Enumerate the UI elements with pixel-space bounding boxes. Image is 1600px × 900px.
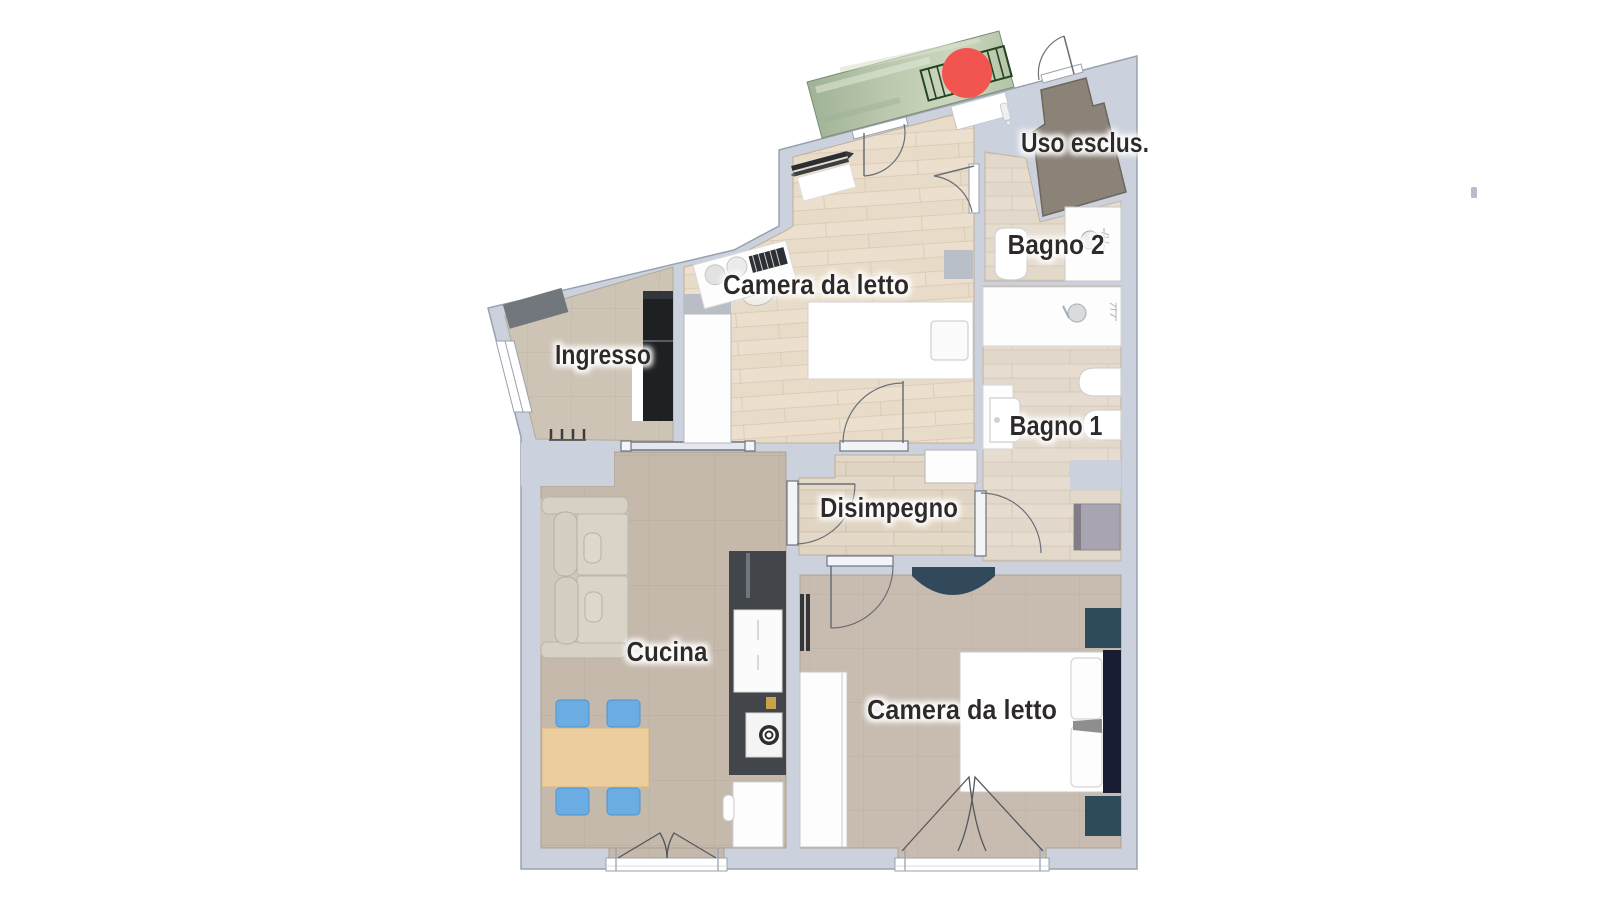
svg-text:Disimpegno: Disimpegno [820, 492, 958, 523]
svg-text:Ingresso: Ingresso [555, 339, 651, 370]
svg-text:Camera da letto: Camera da letto [723, 269, 909, 300]
svg-text:Uso esclus.: Uso esclus. [1021, 127, 1149, 158]
svg-text:Camera da letto: Camera da letto [867, 694, 1057, 725]
svg-text:Cucina: Cucina [627, 636, 708, 667]
svg-text:Bagno 2: Bagno 2 [1008, 229, 1105, 260]
svg-text:Bagno 1: Bagno 1 [1010, 410, 1103, 441]
